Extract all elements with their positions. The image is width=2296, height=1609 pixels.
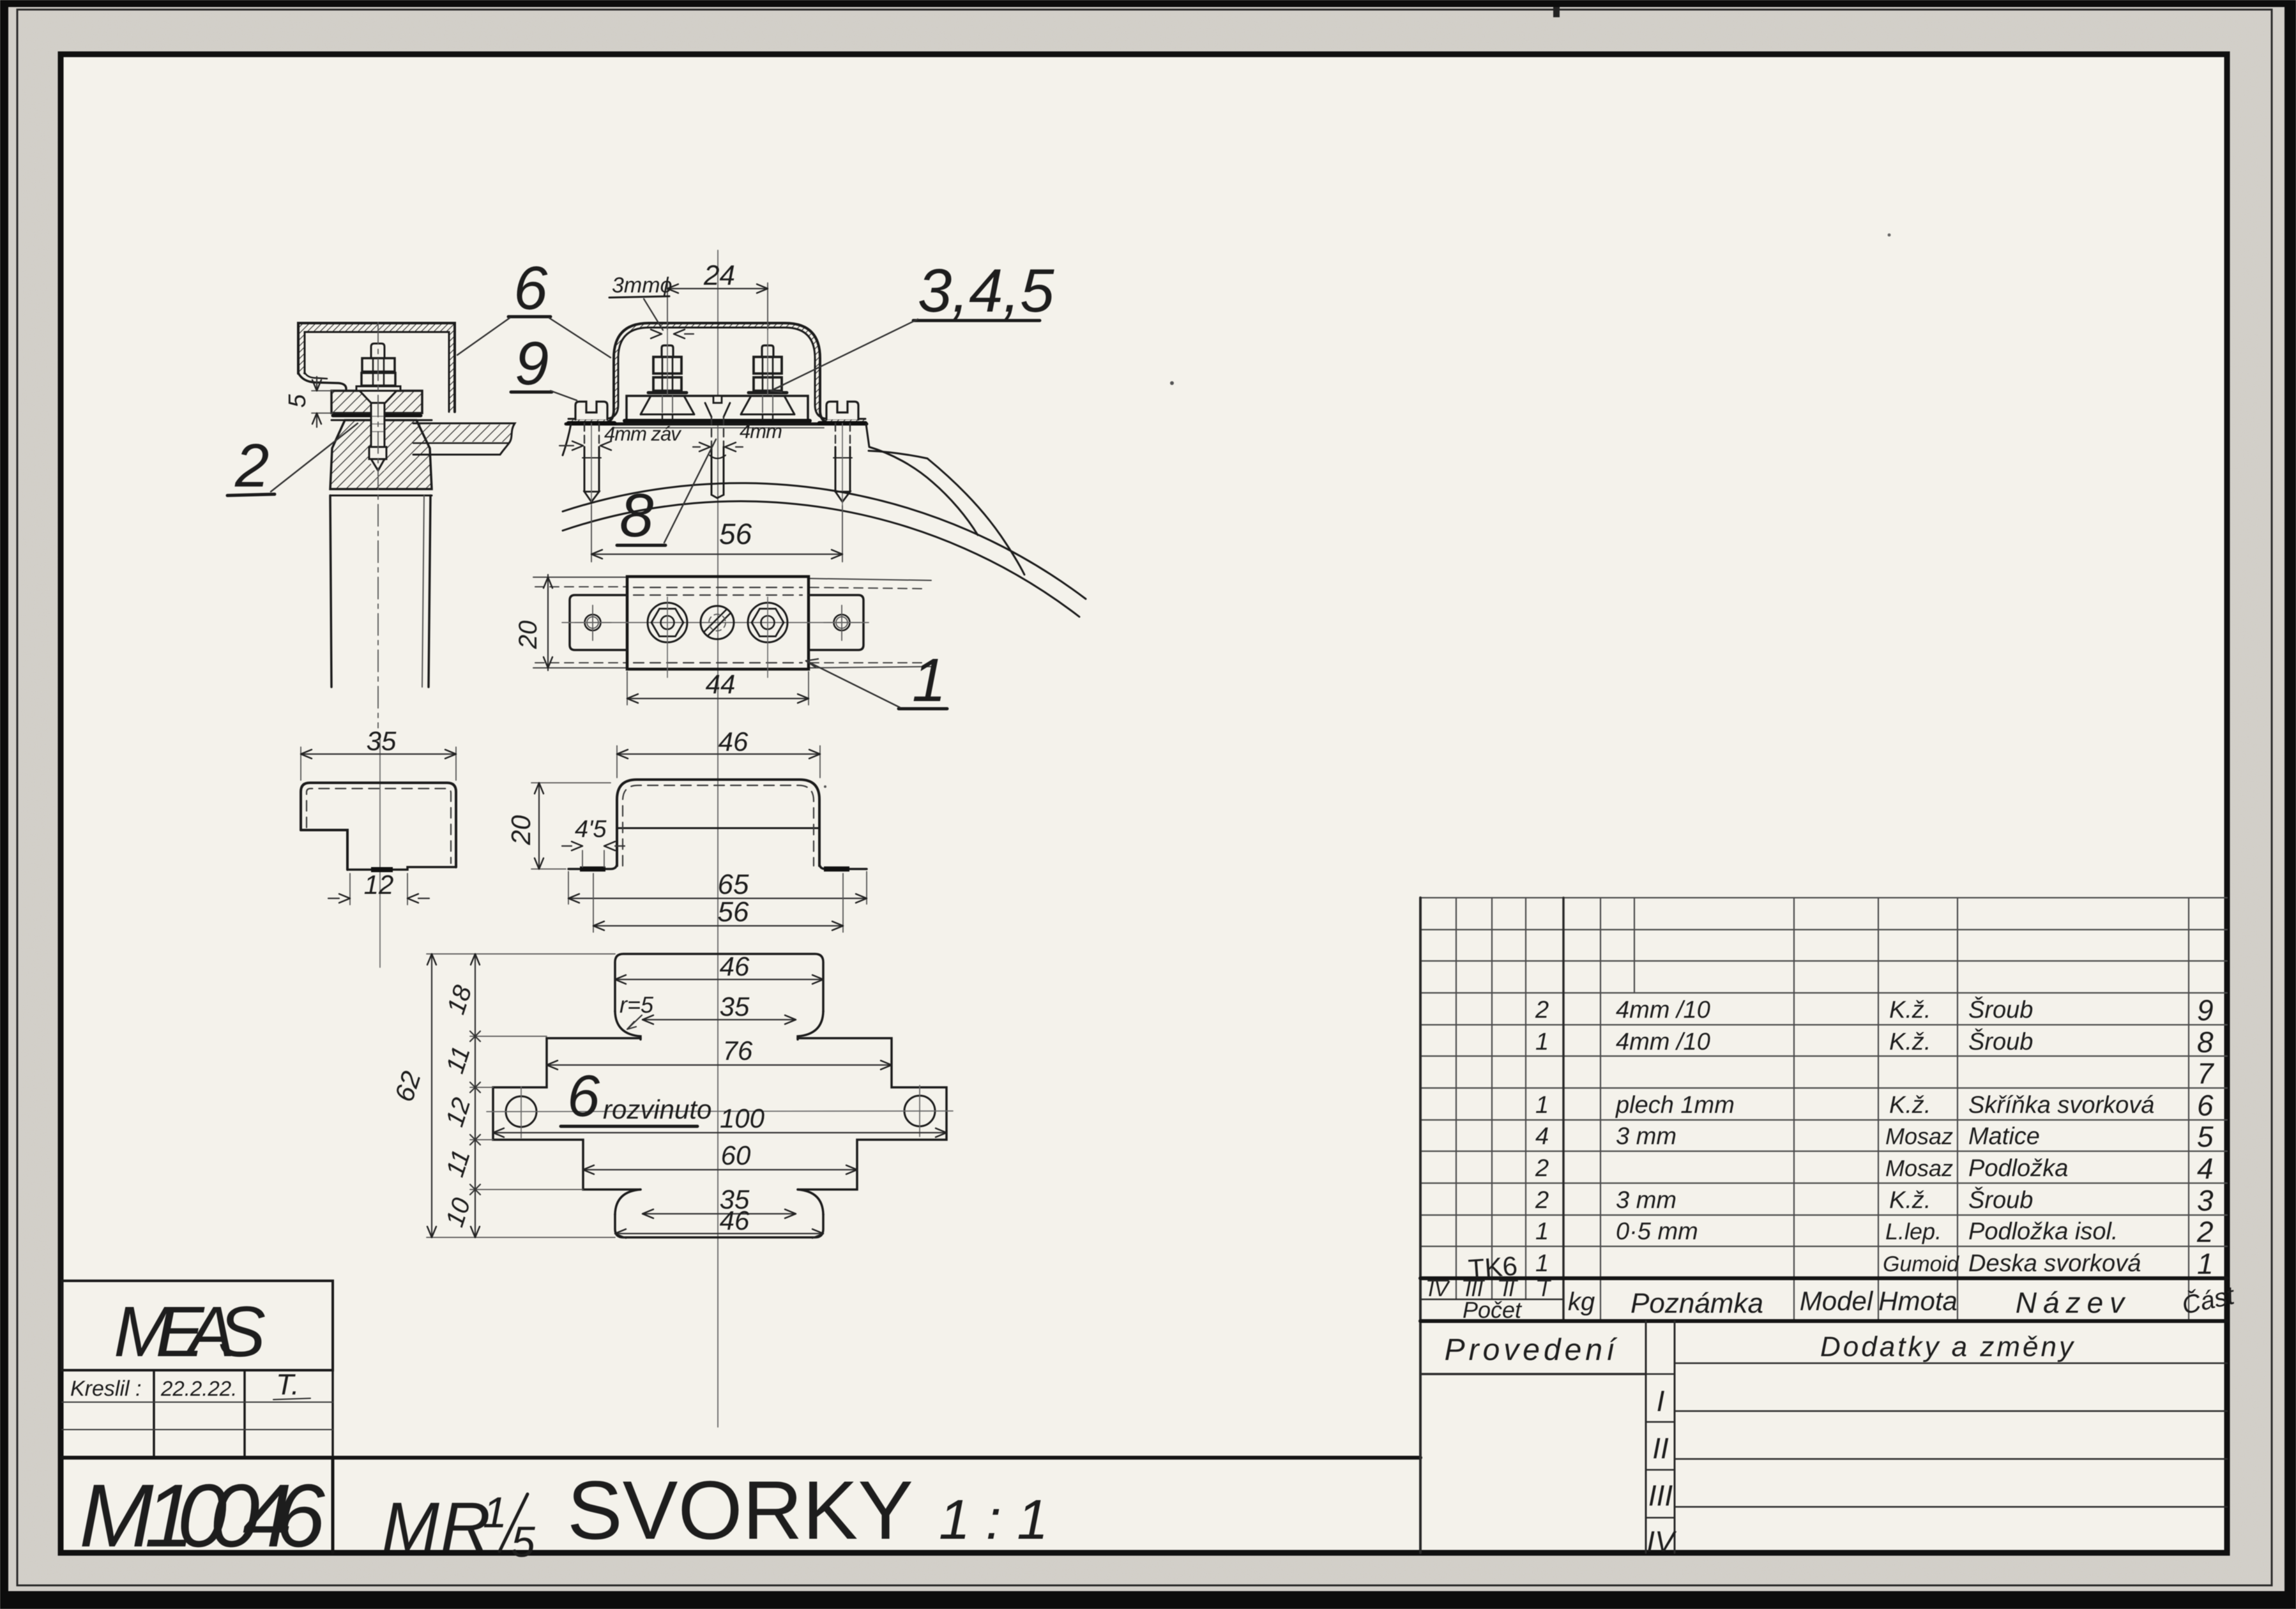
svg-text:MEAS: MEAS bbox=[114, 1292, 266, 1371]
svg-text:I: I bbox=[1657, 1384, 1665, 1417]
svg-text:3 mm: 3 mm bbox=[1616, 1187, 1676, 1214]
svg-text:Mosaz: Mosaz bbox=[1885, 1155, 1953, 1181]
svg-text:plech 1mm: plech 1mm bbox=[1615, 1092, 1735, 1119]
svg-text:SVORKY: SVORKY bbox=[567, 1463, 917, 1557]
svg-text:20: 20 bbox=[514, 621, 542, 650]
svg-text:rozvinuto: rozvinuto bbox=[603, 1094, 711, 1124]
svg-text:9: 9 bbox=[515, 329, 549, 398]
svg-text:K.ž.: K.ž. bbox=[1889, 1187, 1931, 1214]
svg-text:Podložka isol.: Podložka isol. bbox=[1968, 1218, 2118, 1245]
svg-text:1: 1 bbox=[1535, 1092, 1549, 1119]
svg-text:T.: T. bbox=[276, 1368, 300, 1401]
svg-text:6: 6 bbox=[2197, 1089, 2214, 1122]
svg-text:56: 56 bbox=[719, 517, 752, 550]
svg-text:Deska svorková: Deska svorková bbox=[1968, 1250, 2141, 1277]
svg-text:Poznámka: Poznámka bbox=[1631, 1288, 1763, 1319]
svg-text:1: 1 bbox=[1535, 1250, 1549, 1277]
svg-text:Podložka: Podložka bbox=[1968, 1155, 2068, 1182]
svg-text:76: 76 bbox=[723, 1036, 753, 1066]
svg-text:2: 2 bbox=[1535, 1155, 1549, 1182]
svg-text:L.lep.: L.lep. bbox=[1885, 1218, 1942, 1244]
svg-text:Gumoid: Gumoid bbox=[1883, 1252, 1959, 1276]
svg-text:kg: kg bbox=[1568, 1288, 1595, 1316]
svg-text:60: 60 bbox=[721, 1140, 751, 1170]
svg-text:8: 8 bbox=[2197, 1025, 2214, 1059]
svg-text:Dodatky a změny: Dodatky a změny bbox=[1820, 1331, 2076, 1363]
svg-text:1: 1 bbox=[1535, 1029, 1549, 1055]
svg-text:3 mm: 3 mm bbox=[1616, 1123, 1676, 1150]
svg-text:5: 5 bbox=[511, 1518, 535, 1566]
svg-text:4: 4 bbox=[2197, 1152, 2214, 1185]
svg-text:TK6: TK6 bbox=[1467, 1251, 1518, 1284]
svg-text:1 : 1: 1 : 1 bbox=[939, 1488, 1048, 1551]
svg-text:Skříňka svorková: Skříňka svorková bbox=[1968, 1092, 2154, 1119]
svg-text:Provedení: Provedení bbox=[1445, 1333, 1619, 1367]
svg-text:24: 24 bbox=[703, 260, 735, 291]
svg-text:0·5 mm: 0·5 mm bbox=[1616, 1218, 1698, 1245]
svg-text:4mm /10: 4mm /10 bbox=[1616, 997, 1710, 1024]
svg-text:46: 46 bbox=[720, 1205, 750, 1235]
svg-text:II: II bbox=[1652, 1431, 1669, 1465]
svg-text:3mmϕ: 3mmϕ bbox=[612, 273, 672, 298]
svg-text:III: III bbox=[1648, 1479, 1673, 1512]
svg-text:6: 6 bbox=[567, 1064, 600, 1129]
svg-text:M 10046: M 10046 bbox=[79, 1465, 325, 1566]
svg-text:4mm /10: 4mm /10 bbox=[1616, 1029, 1710, 1055]
svg-text:65: 65 bbox=[718, 869, 749, 900]
svg-text:1: 1 bbox=[1535, 1218, 1549, 1245]
svg-text:7: 7 bbox=[2197, 1057, 2214, 1090]
svg-text:MR: MR bbox=[382, 1488, 492, 1565]
svg-text:Počet: Počet bbox=[1463, 1297, 1523, 1323]
svg-text:56: 56 bbox=[718, 896, 749, 928]
svg-text:Šroub: Šroub bbox=[1968, 996, 2033, 1024]
svg-text:K.ž.: K.ž. bbox=[1889, 997, 1931, 1024]
svg-text:4: 4 bbox=[1535, 1123, 1549, 1150]
svg-text:Matice: Matice bbox=[1968, 1123, 2040, 1150]
svg-text:35: 35 bbox=[367, 726, 397, 756]
svg-text:22.2.22.: 22.2.22. bbox=[160, 1377, 237, 1400]
svg-text:2: 2 bbox=[2196, 1215, 2214, 1248]
svg-text:4'5: 4'5 bbox=[575, 816, 607, 843]
svg-text:K.ž.: K.ž. bbox=[1889, 1092, 1931, 1119]
svg-text:1: 1 bbox=[483, 1488, 507, 1537]
svg-text:46: 46 bbox=[720, 951, 750, 981]
svg-text:46: 46 bbox=[718, 727, 749, 757]
svg-text:100: 100 bbox=[720, 1103, 765, 1133]
svg-text:44: 44 bbox=[706, 669, 736, 699]
svg-text:2: 2 bbox=[1535, 1187, 1549, 1214]
svg-text:5: 5 bbox=[2197, 1120, 2214, 1153]
svg-text:8: 8 bbox=[620, 481, 653, 550]
svg-text:1: 1 bbox=[2197, 1247, 2214, 1280]
svg-text:3: 3 bbox=[2197, 1184, 2214, 1217]
svg-text:2: 2 bbox=[234, 432, 269, 500]
svg-text:Model: Model bbox=[1800, 1286, 1874, 1316]
svg-text:IV: IV bbox=[1646, 1525, 1677, 1558]
svg-text:K.ž.: K.ž. bbox=[1889, 1029, 1931, 1055]
svg-text:5: 5 bbox=[284, 394, 311, 408]
svg-text:35: 35 bbox=[720, 992, 750, 1022]
svg-text:Šroub: Šroub bbox=[1968, 1186, 2033, 1214]
svg-text:Kreslil :: Kreslil : bbox=[70, 1377, 141, 1401]
svg-text:Název: Název bbox=[2016, 1286, 2131, 1319]
svg-text:20: 20 bbox=[506, 815, 536, 845]
svg-text:6: 6 bbox=[513, 254, 548, 322]
svg-text:Mosaz: Mosaz bbox=[1885, 1123, 1953, 1149]
svg-text:1: 1 bbox=[912, 646, 946, 714]
svg-text:3,4,5: 3,4,5 bbox=[918, 257, 1054, 325]
svg-text:9: 9 bbox=[2197, 993, 2214, 1027]
svg-text:12: 12 bbox=[364, 870, 394, 900]
svg-text:r=5: r=5 bbox=[620, 992, 654, 1018]
svg-text:4mm: 4mm bbox=[740, 420, 782, 442]
svg-text:2: 2 bbox=[1535, 997, 1549, 1024]
svg-text:4mm záv: 4mm záv bbox=[604, 423, 681, 445]
svg-text:Hmota: Hmota bbox=[1878, 1286, 1958, 1316]
svg-text:Šroub: Šroub bbox=[1968, 1028, 2033, 1055]
